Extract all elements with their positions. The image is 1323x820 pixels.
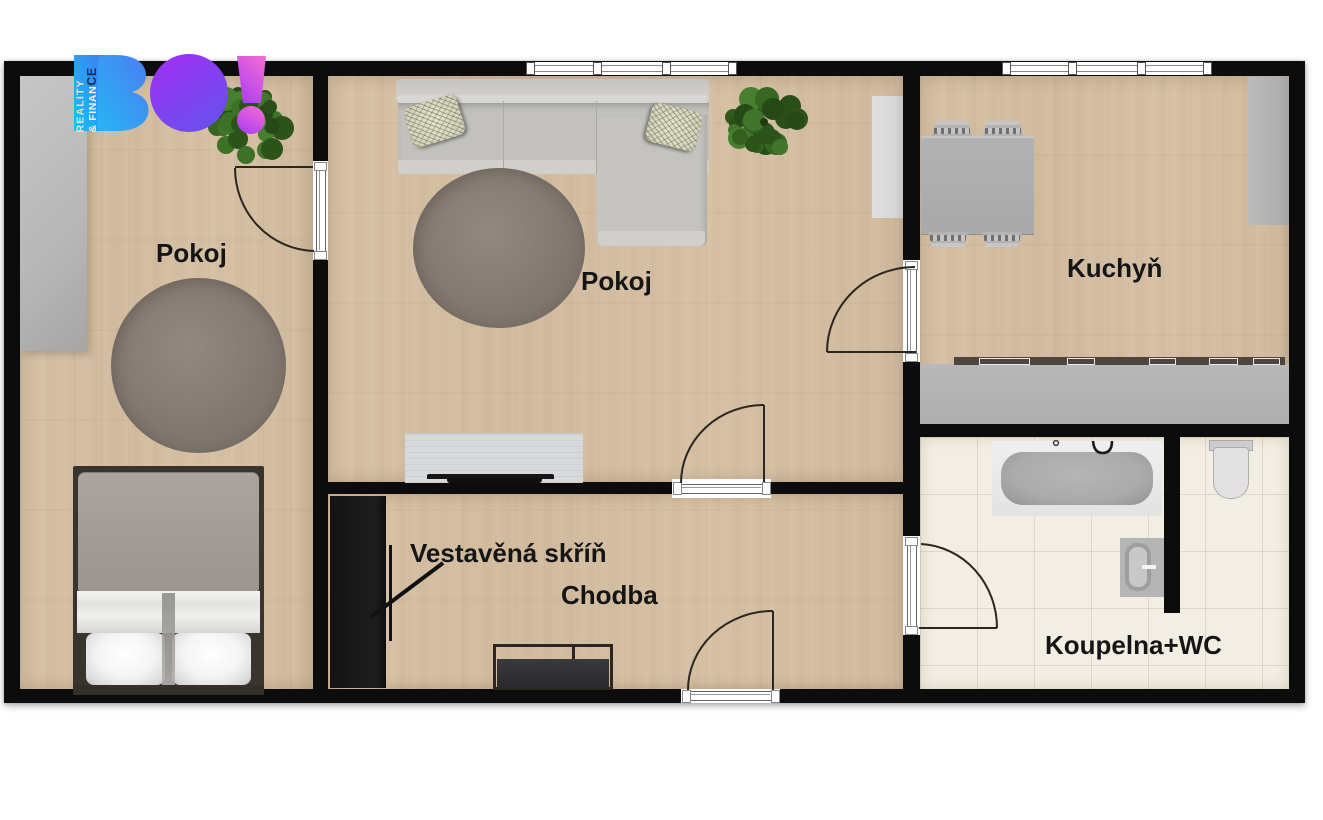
svg-text:& FINANCE: & FINANCE (85, 67, 99, 132)
svg-text:REALITY: REALITY (75, 79, 87, 132)
